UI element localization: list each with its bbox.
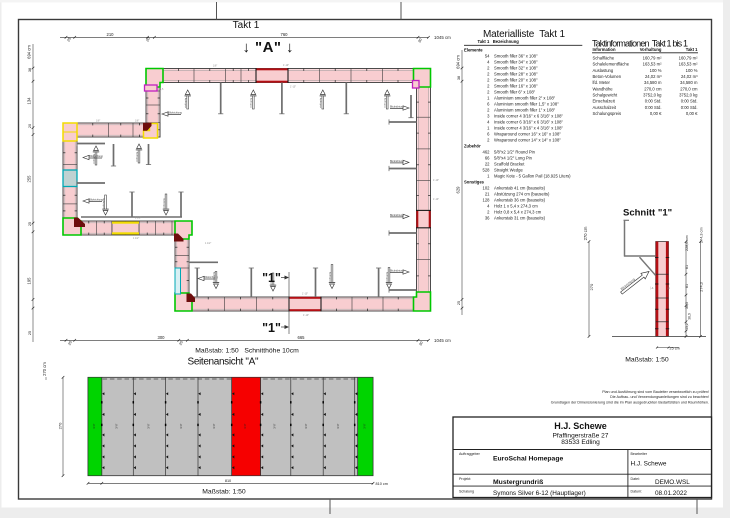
- svg-text:Inside corner 6 3/16" x 6 3/16: Inside corner 6 3/16" x 6 3/16" x 108": [494, 119, 563, 124]
- svg-text:Projekt:: Projekt:: [459, 477, 471, 481]
- svg-text:EuroSchal Homepage: EuroSchal Homepage: [493, 455, 563, 462]
- svg-text:"1": "1": [262, 321, 281, 335]
- svg-text:einhäuptig: einhäuptig: [212, 271, 215, 282]
- svg-text:102: 102: [483, 185, 491, 190]
- svg-text:Wraparound corner 14" x 14" x: Wraparound corner 14" x 14" x 108": [494, 137, 561, 142]
- svg-text:255: 255: [27, 175, 32, 183]
- svg-text:810: 810: [225, 479, 231, 483]
- svg-text:0:00 Std.: 0:00 Std.: [645, 105, 662, 110]
- svg-text:Wraparound corner 16" x 16" x: Wraparound corner 16" x 16" x 108": [494, 131, 561, 136]
- svg-text:Maßstab: 1:50: Maßstab: 1:50: [202, 489, 246, 496]
- svg-text:0,00 €: 0,00 €: [650, 111, 662, 116]
- svg-text:Sonstiges: Sonstiges: [464, 179, 485, 184]
- svg-text:1/8": 1/8": [135, 120, 139, 123]
- svg-text:274,3 cm: 274,3 cm: [699, 227, 703, 243]
- svg-text:38: 38: [457, 76, 461, 80]
- svg-text:08.01.2022: 08.01.2022: [655, 490, 687, 497]
- svg-text:einhäuptig: einhäuptig: [135, 151, 138, 162]
- svg-text:einhäuptig: einhäuptig: [385, 271, 388, 282]
- svg-text:810 cm: 810 cm: [376, 482, 388, 486]
- svg-text:Plan und Ausführung sind vom B: Plan und Ausführung sind vom Bauleiter v…: [602, 390, 709, 394]
- svg-text:22: 22: [485, 161, 490, 166]
- svg-text:274,3: 274,3: [699, 282, 703, 292]
- svg-text:Holz 1 x 5,4 x 274,3 cm: Holz 1 x 5,4 x 274,3 cm: [494, 203, 538, 208]
- svg-text:Smooth filler 32" x 108": Smooth filler 32" x 108": [494, 65, 538, 70]
- svg-text:24,02 m³: 24,02 m³: [681, 74, 698, 79]
- svg-text:einhäuptig: einhäuptig: [250, 97, 253, 108]
- svg-text:Wandhöhe: Wandhöhe: [593, 86, 614, 91]
- svg-text:3752,0 kg: 3752,0 kg: [643, 93, 662, 98]
- svg-text:66: 66: [485, 155, 490, 160]
- svg-text:54: 54: [485, 53, 490, 58]
- svg-text:Ankerstab 31 cm (bauseits): Ankerstab 31 cm (bauseits): [494, 215, 546, 220]
- svg-text:300: 300: [158, 335, 166, 340]
- svg-text:Schalung: Schalung: [459, 490, 474, 494]
- svg-text:"1": "1": [262, 271, 281, 285]
- svg-text:Seitenansicht "A": Seitenansicht "A": [188, 357, 259, 368]
- svg-text:629: 629: [456, 186, 461, 194]
- svg-text:15,2: 15,2: [685, 323, 689, 330]
- svg-text:Aluminium smooth filler 1" x 1: Aluminium smooth filler 1" x 108": [494, 107, 556, 112]
- svg-text:25: 25: [28, 222, 32, 226]
- svg-text:210: 210: [107, 32, 115, 37]
- svg-text:Maßstab: 1:50 Schnitthöhe 10: Maßstab: 1:50 Schnitthöhe 10cm: [195, 348, 299, 355]
- svg-text:3'-0": 3'-0": [92, 423, 96, 428]
- svg-text:5/8"x4 1/2" Long Pin: 5/8"x4 1/2" Long Pin: [494, 155, 533, 160]
- svg-text:3'-0": 3'-0": [115, 423, 119, 428]
- svg-text:Smooth filler 34" x 108": Smooth filler 34" x 108": [494, 59, 538, 64]
- svg-text:Smooth filler 16" x 108": Smooth filler 16" x 108": [494, 83, 538, 88]
- svg-text:665: 665: [298, 335, 306, 340]
- svg-text:270: 270: [589, 283, 594, 290]
- svg-text:Vorhaltung: Vorhaltung: [640, 47, 662, 52]
- svg-text:3'-0": 3'-0": [179, 423, 183, 428]
- svg-text:760: 760: [281, 32, 289, 37]
- svg-text:Beton-Volumen: Beton-Volumen: [593, 74, 622, 79]
- svg-text:1'-10": 1'-10": [433, 179, 439, 182]
- svg-text:einhäuptig: einhäuptig: [162, 198, 165, 209]
- svg-text:Ankerstab 36 cm (bauseits): Ankerstab 36 cm (bauseits): [494, 197, 546, 202]
- svg-text:Smooth filler 28" x 108": Smooth filler 28" x 108": [494, 71, 538, 76]
- svg-text:3752,0 kg: 3752,0 kg: [679, 93, 698, 98]
- svg-text:1045 cm: 1045 cm: [434, 35, 451, 40]
- svg-text:163,53 m²: 163,53 m²: [643, 62, 662, 67]
- svg-text:Ankerstab 41 cm (bauseits): Ankerstab 41 cm (bauseits): [494, 185, 546, 190]
- svg-text:einhäuptig: einhäuptig: [184, 97, 187, 108]
- svg-text:Schnitt "1": Schnitt "1": [623, 208, 672, 219]
- svg-text:↓ "A" ↓: ↓ "A" ↓: [243, 39, 294, 56]
- svg-text:163,53 m²: 163,53 m²: [679, 62, 698, 67]
- svg-text:30,5: 30,5: [685, 302, 689, 309]
- svg-text:Elemente: Elemente: [464, 47, 483, 52]
- svg-text:21: 21: [485, 191, 490, 196]
- svg-text:Straight Wedge: Straight Wedge: [494, 167, 523, 172]
- svg-text:5/8"x2 1/2" Round Pin: 5/8"x2 1/2" Round Pin: [494, 149, 536, 154]
- svg-text:Mustergrundriß: Mustergrundriß: [493, 479, 543, 486]
- svg-text:Die Aufbau- und Verwendungsanl: Die Aufbau- und Verwendungsanleitungen s…: [610, 395, 709, 399]
- svg-text:0,00 €: 0,00 €: [686, 111, 698, 116]
- svg-text:34,580 m: 34,580 m: [680, 80, 698, 85]
- svg-text:1'-10": 1'-10": [302, 293, 308, 296]
- svg-text:Ausschalzeit: Ausschalzeit: [593, 105, 617, 110]
- svg-text:100 %: 100 %: [650, 68, 662, 73]
- svg-text:Blickrichtung: Blickrichtung: [390, 214, 404, 217]
- svg-text:Grundlagen der Dimensionierung: Grundlagen der Dimensionierung sind die …: [551, 400, 709, 404]
- svg-text:3'-0": 3'-0": [304, 423, 308, 428]
- svg-text:Magic Kote - 5 Gallon Pail (18: Magic Kote - 5 Gallon Pail (18.925 Liter…: [494, 173, 571, 178]
- svg-text:61: 61: [685, 284, 689, 288]
- svg-text:0:00 Std.: 0:00 Std.: [681, 105, 698, 110]
- svg-text:528: 528: [483, 167, 491, 172]
- svg-text:3'-0": 3'-0": [212, 423, 216, 428]
- svg-text:Inside corner 4 3/16" x 6 3/16: Inside corner 4 3/16" x 6 3/16" x 108": [494, 113, 563, 118]
- svg-text:Schalungspreis: Schalungspreis: [593, 111, 622, 116]
- svg-text:100 %: 100 %: [686, 68, 698, 73]
- svg-text:Smooth filler 36" x 108": Smooth filler 36" x 108": [494, 53, 538, 58]
- svg-text:25: 25: [28, 331, 32, 335]
- svg-text:3'-0": 3'-0": [336, 423, 340, 428]
- svg-text:270: 270: [58, 422, 63, 429]
- svg-text:0:00 Std.: 0:00 Std.: [645, 99, 662, 104]
- svg-text:1'-10": 1'-10": [303, 314, 309, 317]
- svg-text:Holz 0,8 x 5,4 x 274,3 cm: Holz 0,8 x 5,4 x 274,3 cm: [494, 209, 542, 214]
- svg-text:Einschalzeit: Einschalzeit: [593, 99, 616, 104]
- svg-text:0:00 Std.: 0:00 Std.: [681, 99, 698, 104]
- svg-text:Symons Silver 6-12 (Hauptlager: Symons Silver 6-12 (Hauptlager): [493, 490, 586, 497]
- svg-text:160,79 m²: 160,79 m²: [643, 56, 662, 61]
- svg-text:├b: ├b: [650, 286, 654, 290]
- svg-text:Auslastung: Auslastung: [593, 68, 614, 73]
- svg-text:1'-10": 1'-10": [433, 198, 439, 201]
- svg-text:3'-0": 3'-0": [362, 423, 366, 428]
- svg-text:270,0 cm: 270,0 cm: [680, 86, 698, 91]
- svg-text:1 1/2": 1 1/2": [133, 237, 139, 240]
- svg-text:Inside corner 4 3/16" x 4 3/16: Inside corner 4 3/16" x 4 3/16" x 108": [494, 125, 563, 130]
- svg-text:1'-10": 1'-10": [283, 64, 289, 67]
- svg-text:36: 36: [485, 215, 490, 220]
- svg-text:Abstützung 274 cm (bauseits): Abstützung 274 cm (bauseits): [494, 191, 550, 196]
- svg-text:61: 61: [685, 265, 689, 269]
- svg-text:34,580 m: 34,580 m: [644, 80, 662, 85]
- svg-text:einhäuptig: einhäuptig: [384, 97, 387, 108]
- svg-text:DEMO.WSL: DEMO.WSL: [655, 479, 690, 486]
- svg-text:Scaffold Bracket: Scaffold Bracket: [494, 161, 525, 166]
- svg-text:38: 38: [28, 68, 32, 72]
- svg-text:Takt 1: Takt 1: [686, 47, 698, 52]
- svg-text:H.J. Schewe: H.J. Schewe: [554, 421, 607, 431]
- svg-text:195: 195: [27, 277, 32, 285]
- svg-text:Takt 1: Takt 1: [233, 20, 260, 31]
- svg-text:1 1/2": 1 1/2": [205, 242, 211, 245]
- svg-text:Blickrichtung: Blickrichtung: [390, 105, 404, 108]
- svg-text:128: 128: [483, 197, 491, 202]
- svg-text:1/8": 1/8": [96, 120, 100, 123]
- svg-text:Blickrichtung: Blickrichtung: [89, 198, 103, 201]
- svg-text:694 cm: 694 cm: [27, 45, 32, 59]
- svg-text:Datei:: Datei:: [631, 477, 640, 481]
- svg-text:1'-10": 1'-10": [290, 86, 296, 89]
- svg-text:83533 Edling: 83533 Edling: [561, 439, 600, 446]
- svg-text:H.J. Schewe: H.J. Schewe: [631, 461, 667, 468]
- svg-text:Schalgewicht: Schalgewicht: [593, 93, 619, 98]
- svg-text:Schalfläche: Schalfläche: [593, 56, 615, 61]
- svg-text:Aluminium smooth filler 1,5" x: Aluminium smooth filler 1,5" x 108": [494, 101, 559, 106]
- svg-text:Smooth filler 20" x 108": Smooth filler 20" x 108": [494, 77, 538, 82]
- svg-text:├b: ├b: [667, 286, 671, 290]
- svg-text:Blickrichtung: Blickrichtung: [89, 155, 103, 158]
- svg-text:160,79 m²: 160,79 m²: [679, 56, 698, 61]
- svg-text:einhäuptig: einhäuptig: [319, 97, 322, 108]
- svg-text:Blickrichtung: Blickrichtung: [390, 269, 404, 272]
- svg-text:Datum:: Datum:: [631, 490, 643, 494]
- svg-text:38,0: 38,0: [688, 313, 692, 320]
- svg-text:270 cm: 270 cm: [42, 362, 47, 376]
- svg-text:270 cm: 270 cm: [583, 226, 588, 240]
- svg-text:Auftraggeber: Auftraggeber: [459, 452, 481, 456]
- svg-text:694 cm: 694 cm: [456, 55, 461, 69]
- svg-text:Blickrichtung: Blickrichtung: [390, 160, 404, 163]
- svg-text:270,0 cm: 270,0 cm: [644, 86, 662, 91]
- svg-text:Aluminium smooth filler 2" x 1: Aluminium smooth filler 2" x 108": [494, 95, 556, 100]
- svg-text:lfd. Meter: lfd. Meter: [593, 80, 611, 85]
- svg-text:1 1/2": 1 1/2": [135, 217, 141, 220]
- svg-text:3'-0": 3'-0": [146, 423, 150, 428]
- svg-text:1/8": 1/8": [213, 65, 217, 68]
- svg-text:Schalelementfläche: Schalelementfläche: [593, 62, 630, 67]
- svg-text:Maßstab: 1:50: Maßstab: 1:50: [625, 357, 669, 364]
- svg-text:Bearbeiter: Bearbeiter: [631, 452, 648, 456]
- svg-text:Zubehör: Zubehör: [464, 143, 481, 148]
- svg-text:1045 cm: 1045 cm: [434, 338, 451, 343]
- svg-text:3'-0": 3'-0": [273, 423, 277, 428]
- svg-text:3'-0": 3'-0": [243, 423, 247, 428]
- svg-text:134: 134: [27, 97, 32, 105]
- svg-text:Smooth filler 6" x 108": Smooth filler 6" x 108": [494, 89, 536, 94]
- svg-text:25: 25: [457, 301, 461, 305]
- svg-text:228,6 cm: 228,6 cm: [685, 235, 689, 251]
- svg-text:einhäuptig: einhäuptig: [328, 271, 331, 282]
- svg-text:einhäuptig: einhäuptig: [102, 198, 105, 209]
- svg-text:Blickrichtung: Blickrichtung: [168, 111, 182, 114]
- svg-text:462: 462: [483, 149, 491, 154]
- svg-text:25 cm: 25 cm: [670, 346, 680, 350]
- svg-text:24,02 m³: 24,02 m³: [645, 74, 662, 79]
- svg-text:Takt 1 Bezeichnung: Takt 1 Bezeichnung: [478, 39, 520, 44]
- svg-text:Information: Information: [593, 47, 616, 52]
- svg-text:20: 20: [28, 124, 32, 128]
